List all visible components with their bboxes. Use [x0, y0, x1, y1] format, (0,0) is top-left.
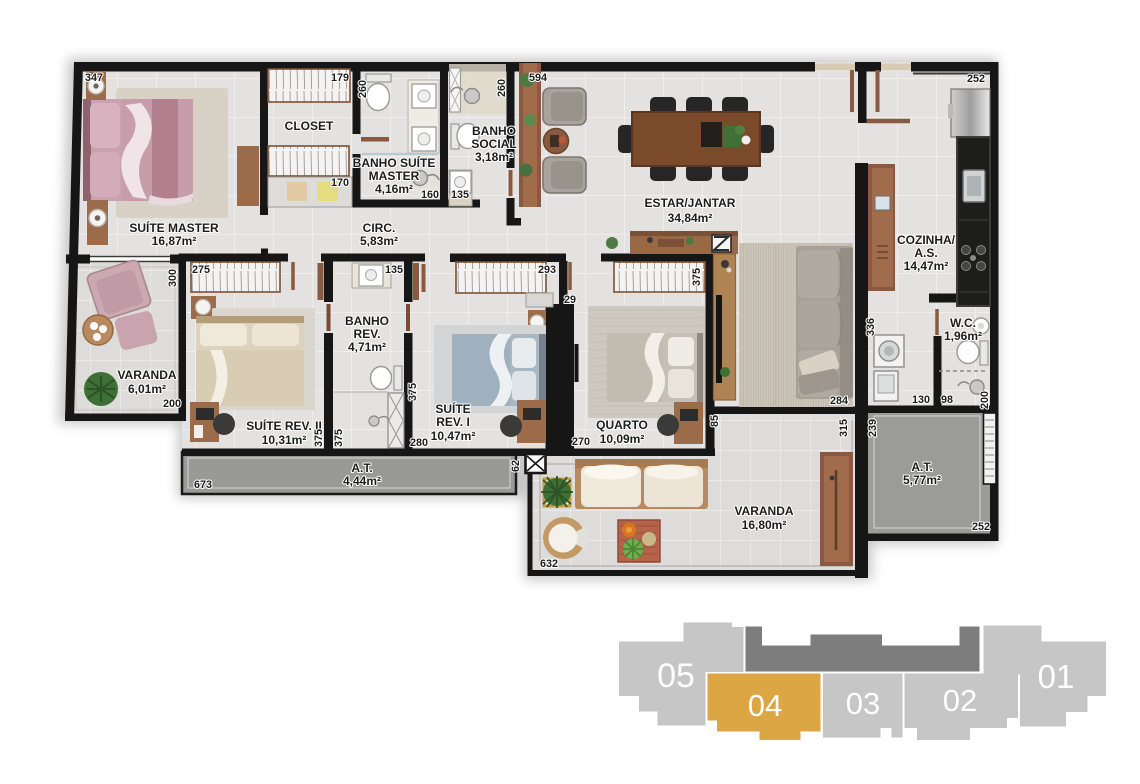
svg-text:5,83m²: 5,83m² [360, 234, 398, 248]
svg-text:252: 252 [972, 521, 990, 533]
svg-text:SUÍTE REV. II: SUÍTE REV. II [246, 418, 322, 433]
svg-text:239: 239 [867, 419, 879, 437]
svg-text:98: 98 [941, 394, 953, 406]
svg-text:QUARTO: QUARTO [596, 418, 648, 432]
svg-text:29: 29 [564, 294, 576, 306]
svg-text:275: 275 [192, 264, 210, 276]
svg-text:A.S.: A.S. [914, 246, 937, 260]
svg-text:34,84m²: 34,84m² [668, 211, 713, 225]
svg-text:62: 62 [510, 460, 522, 472]
svg-text:5,77m²: 5,77m² [903, 473, 941, 487]
svg-text:375: 375 [691, 268, 703, 286]
svg-text:135: 135 [451, 189, 469, 201]
svg-text:VARANDA: VARANDA [734, 504, 793, 518]
svg-text:200: 200 [979, 391, 991, 409]
svg-text:252: 252 [967, 73, 985, 85]
svg-text:16,80m²: 16,80m² [742, 518, 787, 532]
svg-text:375: 375 [333, 429, 345, 447]
svg-text:05: 05 [657, 657, 695, 695]
svg-text:6,01m²: 6,01m² [128, 382, 166, 396]
svg-text:270: 270 [572, 436, 590, 448]
svg-text:REV. I: REV. I [436, 415, 470, 429]
svg-text:315: 315 [838, 419, 850, 437]
svg-text:375: 375 [407, 383, 419, 401]
svg-text:200: 200 [163, 398, 181, 410]
svg-text:336: 336 [865, 318, 877, 336]
svg-text:10,47m²: 10,47m² [431, 429, 476, 443]
svg-text:300: 300 [167, 269, 179, 287]
svg-text:632: 632 [540, 558, 558, 570]
svg-text:ESTAR/JANTAR: ESTAR/JANTAR [645, 196, 736, 210]
svg-text:280: 280 [410, 437, 428, 449]
svg-text:BANHO SUÍTE: BANHO SUÍTE [353, 155, 436, 170]
svg-text:375: 375 [313, 429, 325, 447]
svg-text:A.T.: A.T. [911, 460, 932, 474]
svg-text:10,09m²: 10,09m² [600, 432, 645, 446]
svg-text:03: 03 [846, 686, 880, 721]
svg-text:COZINHA/: COZINHA/ [897, 233, 956, 247]
svg-text:14,47m²: 14,47m² [904, 259, 949, 273]
svg-text:130: 130 [912, 394, 930, 406]
svg-text:4,71m²: 4,71m² [348, 340, 386, 354]
svg-text:170: 170 [331, 177, 349, 189]
svg-text:SUÍTE MASTER: SUÍTE MASTER [129, 220, 219, 235]
svg-text:1,96m²: 1,96m² [944, 329, 982, 343]
svg-text:4,44m²: 4,44m² [343, 474, 381, 488]
svg-text:16,87m²: 16,87m² [152, 234, 197, 248]
svg-text:260: 260 [496, 79, 508, 97]
svg-text:160: 160 [421, 189, 439, 201]
svg-text:135: 135 [385, 264, 403, 276]
svg-text:293: 293 [538, 264, 556, 276]
svg-text:260: 260 [357, 80, 369, 98]
svg-text:594: 594 [529, 72, 547, 84]
svg-text:BANHO: BANHO [472, 124, 516, 138]
svg-text:3,18m²: 3,18m² [475, 150, 513, 164]
svg-text:10,31m²: 10,31m² [262, 433, 307, 447]
svg-text:SUÍTE: SUÍTE [435, 401, 470, 416]
svg-text:673: 673 [194, 479, 212, 491]
svg-text:CLOSET: CLOSET [285, 119, 334, 133]
svg-text:BANHO: BANHO [345, 314, 389, 328]
svg-text:347: 347 [85, 72, 103, 84]
svg-text:REV.: REV. [354, 327, 381, 341]
svg-text:01: 01 [1038, 658, 1075, 695]
svg-text:02: 02 [943, 683, 977, 718]
svg-text:179: 179 [331, 72, 349, 84]
svg-text:85: 85 [709, 415, 721, 427]
svg-text:CIRC.: CIRC. [363, 221, 396, 235]
svg-text:SOCIAL: SOCIAL [471, 137, 516, 151]
svg-text:VARANDA: VARANDA [117, 368, 176, 382]
svg-text:MASTER: MASTER [369, 169, 420, 183]
svg-text:4,16m²: 4,16m² [375, 182, 413, 196]
svg-text:04: 04 [748, 688, 782, 723]
svg-text:284: 284 [830, 395, 848, 407]
svg-text:W.C.: W.C. [950, 316, 976, 330]
svg-text:A.T.: A.T. [351, 461, 372, 475]
